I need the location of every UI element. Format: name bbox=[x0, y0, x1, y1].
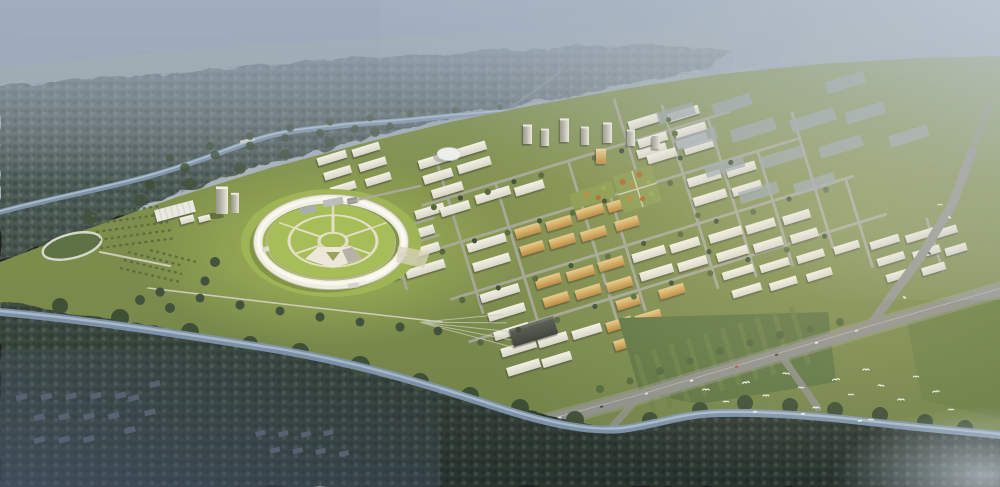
ring-courtyard bbox=[267, 204, 395, 278]
aerial-rendering bbox=[0, 0, 1000, 487]
rendering-stage bbox=[0, 0, 1000, 487]
village-fog bbox=[0, 350, 440, 487]
